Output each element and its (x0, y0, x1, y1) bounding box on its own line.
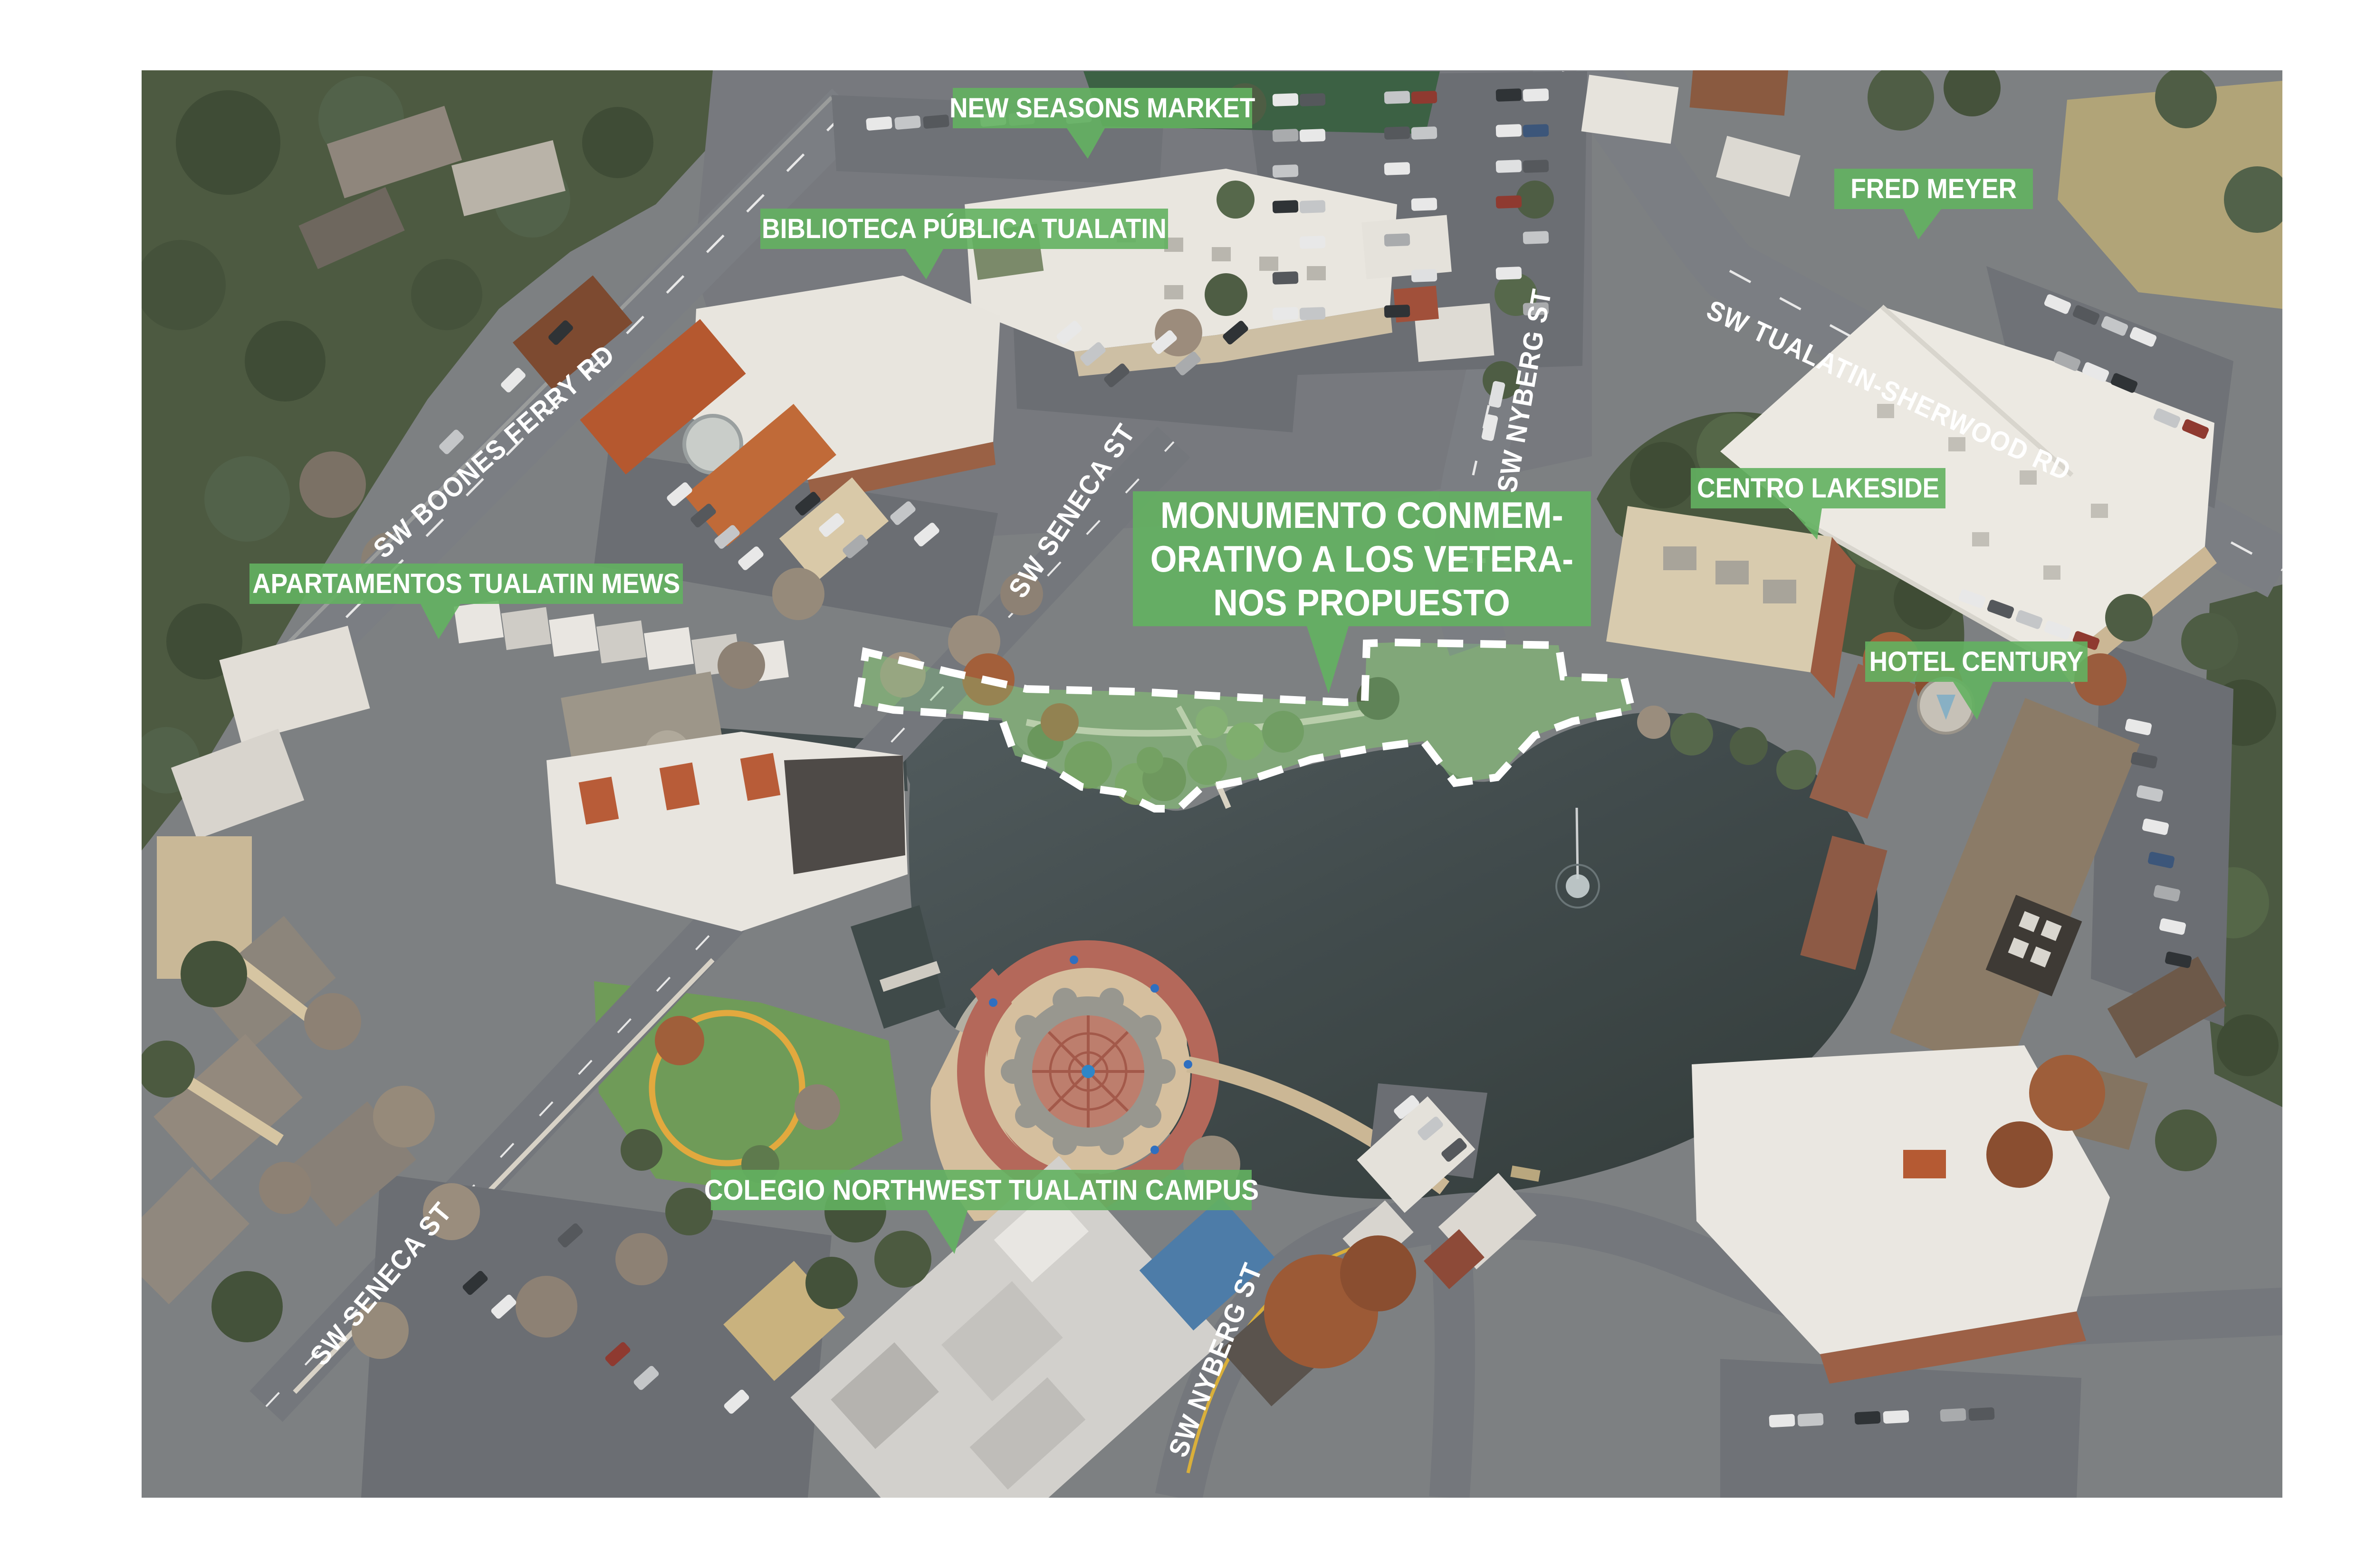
fountain (1566, 874, 1590, 898)
label-text: HOTEL CENTURY (1869, 646, 2084, 678)
label-apartamentos: APARTAMENTOS TUALATIN MEWS (249, 564, 683, 604)
label-hotel-century: HOTEL CENTURY (1865, 641, 2088, 682)
label-text: NEW SEASONS MARKET (949, 92, 1255, 124)
label-text-line2: ORATIVO A LOS VETERA- (1150, 537, 1573, 581)
label-colegio: COLEGIO NORTHWEST TUALATIN CAMPUS (711, 1170, 1252, 1210)
label-text: APARTAMENTOS TUALATIN MEWS (252, 568, 680, 600)
label-centro-lakeside: CENTRO LAKESIDE (1691, 468, 1945, 508)
label-text: COLEGIO NORTHWEST TUALATIN CAMPUS (704, 1174, 1258, 1206)
fountain-pole (1577, 808, 1578, 879)
aerial-photo: NEW SEASONS MARKET BIBLIOTECA PÚBLICA TU… (142, 70, 2282, 1498)
label-text: BIBLIOTECA PÚBLICA TUALATIN (762, 213, 1167, 245)
label-text-line1: MONUMENTO CONMEM- (1160, 493, 1563, 537)
label-text-line3: NOS PROPUESTO (1214, 581, 1511, 624)
label-text: CENTRO LAKESIDE (1697, 472, 1939, 504)
page: NEW SEASONS MARKET BIBLIOTECA PÚBLICA TU… (0, 0, 2376, 1568)
label-biblioteca: BIBLIOTECA PÚBLICA TUALATIN (760, 209, 1168, 249)
label-proposed-monument: MONUMENTO CONMEM- ORATIVO A LOS VETERA- … (1133, 491, 1591, 626)
label-fred-meyer: FRED MEYER (1834, 169, 2033, 209)
aerial-photo-scene (142, 70, 2282, 1498)
label-text: FRED MEYER (1850, 173, 2017, 205)
label-new-seasons-market: NEW SEASONS MARKET (953, 88, 1252, 128)
